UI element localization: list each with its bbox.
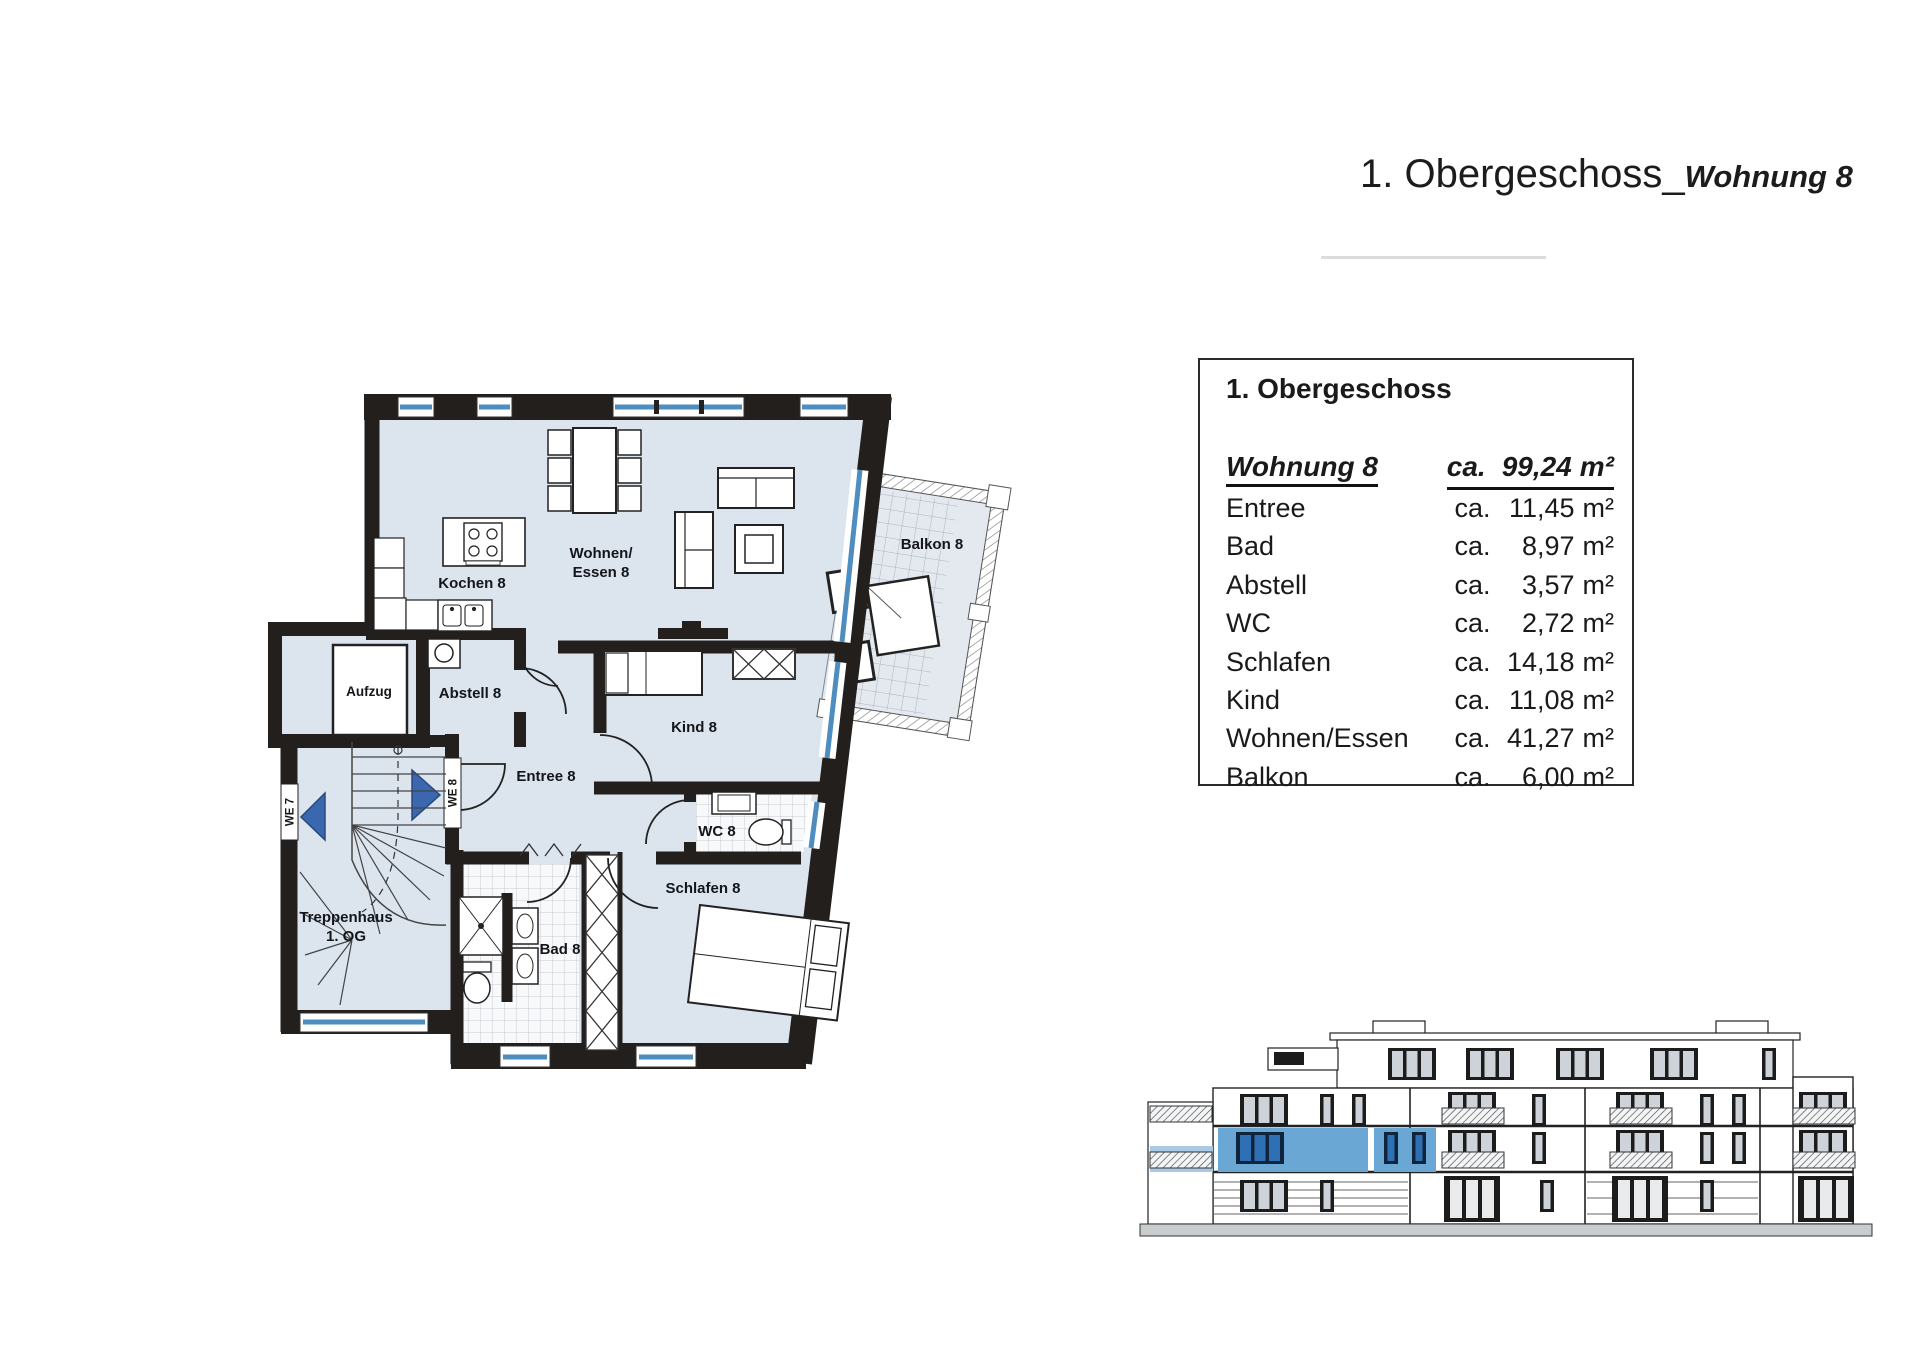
room-label-kind: Kind 8 [671, 719, 717, 736]
table-row: Abstellca.3,57m² [1226, 570, 1614, 608]
balcony-railing [1442, 1108, 1504, 1124]
scan-artifact-line [1321, 256, 1546, 259]
summary-apartment-row: Wohnung 8 ca.99,24m² [1226, 451, 1614, 493]
balcony-railing [1150, 1152, 1212, 1168]
window-group [1556, 1048, 1604, 1080]
window [1532, 1132, 1546, 1164]
page-title-suffix: Wohnung 8 [1685, 159, 1853, 194]
entry-door [1444, 1176, 1500, 1222]
window [1762, 1048, 1776, 1080]
room-label-wohnen2: Essen 8 [573, 564, 630, 581]
we8-label: WE 8 [448, 778, 460, 807]
room-label-schlafen: Schlafen 8 [665, 880, 740, 897]
area-summary-table: 1. Obergeschoss Wohnung 8 ca.99,24m² Ent… [1198, 358, 1634, 786]
balcony-railing [1150, 1106, 1212, 1122]
room-label-treppenhaus: Treppenhaus [299, 909, 392, 926]
window [1732, 1094, 1746, 1126]
highlight-apartment-wall [1374, 1128, 1436, 1172]
room-label-treppenhaus2: 1. OG [326, 928, 366, 945]
highlight-window-group [1236, 1132, 1284, 1164]
toilet-icon [464, 973, 490, 1003]
dining-set [548, 428, 641, 513]
ground-line [1140, 1224, 1872, 1236]
floor-plan: Wohnen/ Essen 8 Kochen 8 Abstell 8 Aufzu… [225, 300, 1075, 1100]
window [1700, 1132, 1714, 1164]
stove-icon [464, 523, 502, 561]
window-group [1240, 1180, 1288, 1212]
window [1532, 1094, 1546, 1126]
window [1320, 1094, 1334, 1126]
table-row: Badca.8,97m² [1226, 531, 1614, 569]
highlight-window [1412, 1132, 1426, 1164]
kid-bed [604, 651, 702, 695]
attic-slab [1330, 1033, 1800, 1040]
window [1540, 1180, 1554, 1212]
window [1700, 1180, 1714, 1212]
apartment-total-area: ca.99,24m² [1447, 451, 1614, 490]
room-label-wohnen: Wohnen/ [569, 545, 633, 562]
window-group [1240, 1094, 1288, 1126]
building-elevation [1132, 1008, 1877, 1248]
window [1320, 1180, 1334, 1212]
toilet-icon [749, 819, 783, 845]
window [1352, 1094, 1366, 1126]
room-label-aufzug: Aufzug [346, 684, 392, 699]
table-row: Entreeca.11,45m² [1226, 493, 1614, 531]
table-row: Schlafenca.14,18m² [1226, 647, 1614, 685]
parapet-grille [1274, 1052, 1304, 1065]
roof-stub [1373, 1021, 1425, 1034]
window [1732, 1132, 1746, 1164]
washing-machine-icon [428, 639, 460, 668]
page-title: 1. Obergeschoss_Wohnung 8 [1360, 152, 1853, 197]
balcony-railing [1793, 1108, 1855, 1124]
roof-stub [1716, 1021, 1768, 1034]
highlight-window [1384, 1132, 1398, 1164]
room-label-balkon: Balkon 8 [901, 536, 964, 553]
window-group [1650, 1048, 1698, 1080]
balcony-railing [1793, 1152, 1855, 1168]
summary-header: 1. Obergeschoss [1226, 373, 1614, 405]
we7-label: WE 7 [285, 798, 297, 826]
table-row: Wohnen/Essenca.41,27m² [1226, 723, 1614, 761]
entry-door [1612, 1176, 1668, 1222]
table-row: WCca.2,72m² [1226, 608, 1614, 646]
room-label-kochen: Kochen 8 [438, 575, 506, 592]
balcony-railing [1442, 1152, 1504, 1168]
room-label-bad: Bad 8 [540, 941, 581, 958]
window [1700, 1094, 1714, 1126]
window-group [1466, 1048, 1514, 1080]
balcony-railing [1610, 1152, 1672, 1168]
room-label-abstell: Abstell 8 [439, 685, 502, 702]
double-bed [688, 905, 849, 1021]
window-group [1388, 1048, 1436, 1080]
balcony-railing [1610, 1108, 1672, 1124]
page-title-main: 1. Obergeschoss_ [1360, 152, 1685, 196]
apartment-name: Wohnung 8 [1226, 451, 1447, 493]
room-label-entree: Entree 8 [516, 768, 575, 785]
table-row: Kindca.11,08m² [1226, 685, 1614, 723]
table-row: Balkonca.6,00m² [1226, 762, 1614, 800]
entry-door [1798, 1176, 1854, 1222]
room-label-wc: WC 8 [698, 823, 736, 840]
